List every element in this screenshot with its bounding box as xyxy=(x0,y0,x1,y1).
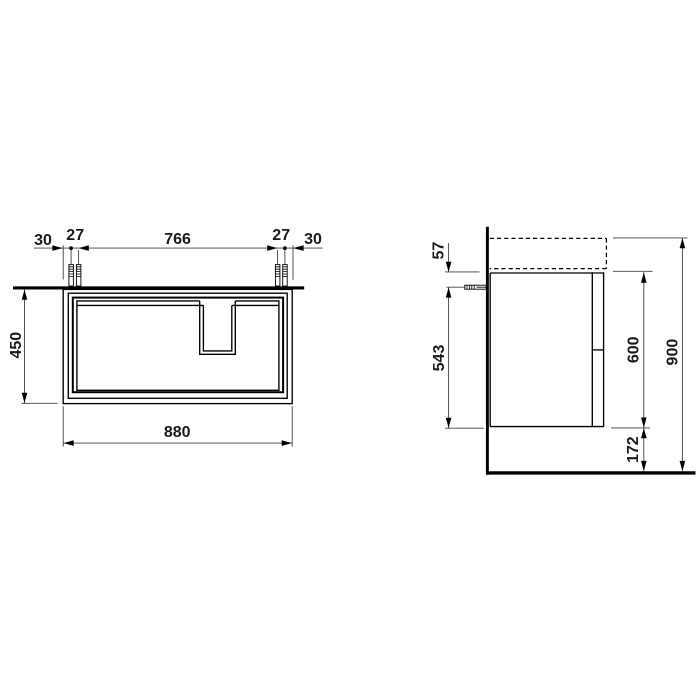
svg-text:172: 172 xyxy=(625,436,642,463)
svg-text:766: 766 xyxy=(164,231,191,248)
svg-text:880: 880 xyxy=(164,424,191,441)
svg-text:30: 30 xyxy=(304,231,322,248)
svg-text:57: 57 xyxy=(431,242,448,260)
svg-text:543: 543 xyxy=(431,345,448,372)
svg-text:27: 27 xyxy=(272,227,290,244)
svg-text:600: 600 xyxy=(626,336,643,363)
svg-text:900: 900 xyxy=(665,339,682,366)
svg-text:27: 27 xyxy=(66,227,84,244)
svg-text:30: 30 xyxy=(34,232,52,249)
svg-text:450: 450 xyxy=(8,332,25,359)
